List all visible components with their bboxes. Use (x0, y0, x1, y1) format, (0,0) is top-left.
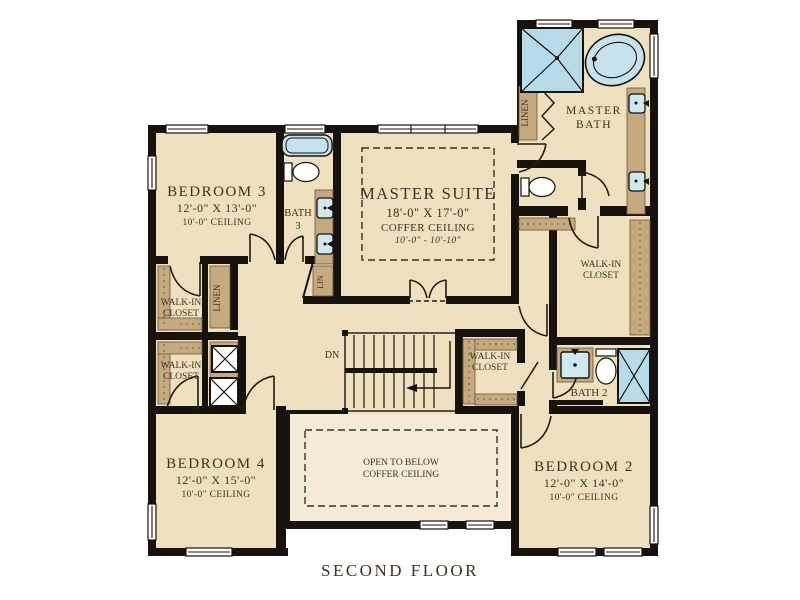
bedroom3-dims: 12'-0" X 13'-0" (177, 201, 257, 215)
bath2-shower (618, 349, 650, 403)
wall-segment (517, 337, 525, 363)
open-to-below-label-2: COFFER CEILING (363, 470, 439, 480)
toilet-tank (284, 163, 292, 181)
linen-label-masterbath: LINEN (520, 99, 530, 126)
bath2-label: BATH 2 (571, 387, 608, 399)
walkin-closet-br4-1: WALK-IN (161, 361, 202, 371)
wall-segment (333, 133, 341, 304)
wall-segment (517, 206, 568, 216)
shower-drain (555, 56, 559, 60)
railing (286, 410, 290, 521)
wall-segment (455, 337, 463, 414)
bath2-sink (561, 349, 589, 378)
wall-segment (549, 216, 557, 337)
wall-segment (200, 256, 248, 264)
toilet-bowl (293, 163, 319, 182)
toilet-bowl (596, 358, 616, 384)
master-suite-height: 10'-0" - 10'-10" (395, 236, 462, 246)
master-bath-label-1: MASTER (566, 105, 622, 117)
wall-segment (148, 256, 168, 264)
master-shower (521, 28, 583, 92)
bedroom2-dims: 12'-0" X 14'-0" (544, 476, 624, 490)
floor-plan: BEDROOM 3 12'-0" X 13'-0" 10'-0" CEILING… (0, 0, 800, 600)
wall-segment (446, 296, 517, 304)
stair-newel (342, 408, 348, 414)
sink-drain (573, 363, 577, 367)
walkin-closet-master-1: WALK-IN (581, 260, 622, 270)
wall-segment (455, 406, 511, 414)
linen-label-left: LINEN (212, 284, 222, 311)
wall-segment (303, 296, 343, 304)
bedroom4-label: BEDROOM 4 (166, 456, 266, 472)
railing (286, 410, 347, 414)
bedroom3-label: BEDROOM 3 (167, 184, 267, 200)
walkin-closet-br3-1: WALK-IN (161, 298, 202, 308)
water-closet-toilet (521, 178, 555, 197)
wall-segment (230, 264, 238, 330)
bath2-toilet (596, 349, 616, 384)
wall-segment (341, 296, 410, 304)
toilet-bowl (529, 178, 555, 197)
bath3-toilet (284, 163, 319, 182)
bath3-label-2: 3 (295, 221, 300, 232)
master-suite-dims: 18'-0" X 17'-0" (386, 206, 469, 220)
wall-segment (511, 406, 519, 556)
walkin-closet-master-2: CLOSET (583, 271, 619, 281)
bath2-halfwall (557, 400, 603, 405)
stair-newel (455, 408, 461, 414)
lin-label: LIN (316, 275, 325, 289)
wall-segment (148, 406, 240, 414)
sink-drain (324, 243, 327, 246)
wall-segment (517, 160, 579, 168)
wall-segment (549, 337, 650, 345)
open-to-below-label-1: OPEN TO BELOW (363, 458, 439, 468)
walkin-closet-br4-2: CLOSET (163, 372, 199, 382)
sink-drain (635, 102, 638, 105)
bedroom3-ceiling: 10'-0" CEILING (183, 218, 252, 228)
bedroom2-ceiling: 10'-0" CEILING (550, 493, 619, 503)
sink-drain (324, 207, 327, 210)
bedroom4-ceiling: 10'-0" CEILING (182, 490, 251, 500)
walkin-closet-br2-2: CLOSET (472, 363, 508, 373)
wall-segment (202, 340, 208, 406)
master-suite-label: MASTER SUITE (360, 184, 496, 203)
wall-segment (549, 406, 650, 414)
wall-segment (650, 20, 658, 556)
toilet-tank (596, 349, 616, 356)
master-bath-label-2: BATH (576, 119, 612, 131)
master-suite-ceiling: COFFER CEILING (381, 222, 475, 234)
wall-segment (578, 198, 586, 210)
walkin-closet-br2-1: WALK-IN (470, 352, 511, 362)
wall-segment (511, 133, 519, 143)
wall-segment (549, 400, 557, 406)
wall-segment (549, 345, 557, 370)
wall-segment (517, 391, 525, 406)
wall-segment (202, 264, 208, 332)
wall-segment (511, 174, 519, 304)
walkin-closet-br3-2: CLOSET (163, 309, 199, 319)
floor-plan-svg: BEDROOM 3 12'-0" X 13'-0" 10'-0" CEILING… (0, 0, 800, 600)
bedroom4-dims: 12'-0" X 15'-0" (176, 473, 256, 487)
bath3-tub (282, 135, 332, 156)
stairs-dn-label: DN (325, 350, 339, 361)
bedroom2-label: BEDROOM 2 (534, 459, 634, 475)
toilet-tank (521, 178, 529, 196)
stair-newel (342, 330, 348, 336)
bath3-label-1: BATH (284, 208, 312, 219)
wall-segment (148, 332, 238, 340)
stair-newel (455, 330, 461, 336)
stair-stringer (345, 368, 437, 373)
plan-title: SECOND FLOOR (321, 561, 479, 580)
wall-segment (276, 406, 286, 556)
wall-segment (455, 329, 525, 337)
sink-drain (635, 180, 638, 183)
